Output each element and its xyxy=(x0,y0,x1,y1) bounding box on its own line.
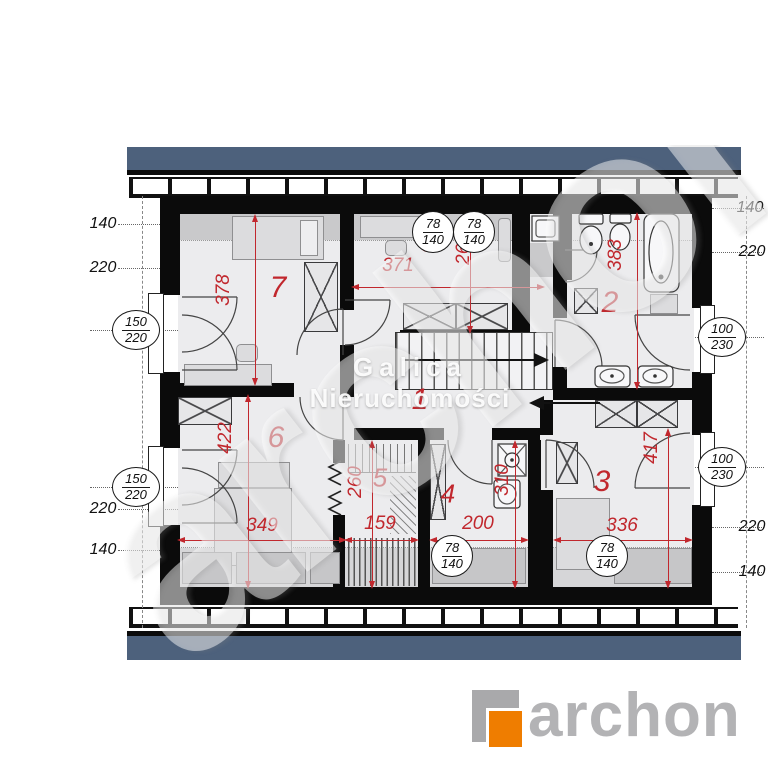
room-number-3: 3 xyxy=(594,465,611,499)
dim-310: 310 xyxy=(492,464,514,496)
marker-width: 78 xyxy=(423,217,443,233)
door-marker-right-bottom: 100 230 xyxy=(698,447,746,487)
room-number-1: 1 xyxy=(412,383,429,417)
dim-159: 159 xyxy=(364,513,396,535)
marker-width: 78 xyxy=(464,217,484,233)
skylight-marker: 78 140 xyxy=(586,535,628,577)
dimension-line xyxy=(349,540,414,541)
marker-width: 150 xyxy=(122,472,150,488)
marker-height: 230 xyxy=(708,468,736,483)
dim-422: 422 xyxy=(215,422,237,454)
dim-336: 336 xyxy=(606,515,638,537)
dim-383: 383 xyxy=(605,239,627,271)
marker-width: 78 xyxy=(442,541,462,557)
window-marker-left-bottom: 150 220 xyxy=(112,467,160,507)
dimension-line xyxy=(182,540,342,541)
room-number-6: 6 xyxy=(268,421,285,455)
room-number-2: 2 xyxy=(602,286,619,320)
window-marker-left-top: 150 220 xyxy=(112,310,160,350)
dim-371: 371 xyxy=(382,255,414,277)
dimension-line xyxy=(356,287,540,288)
room-number-4: 4 xyxy=(441,479,455,510)
dimension-line xyxy=(248,400,249,583)
dim-378: 378 xyxy=(213,274,235,306)
room-number-5: 5 xyxy=(373,463,387,494)
marker-height: 230 xyxy=(708,338,736,353)
marker-height: 140 xyxy=(593,557,621,572)
dimension-line xyxy=(637,218,638,384)
dim-417: 417 xyxy=(641,432,663,464)
plan-linework xyxy=(0,0,768,768)
room-number-7: 7 xyxy=(270,271,287,305)
skylight-marker: 78 140 xyxy=(412,211,454,253)
marker-height: 140 xyxy=(438,557,466,572)
dimension-line xyxy=(558,540,688,541)
marker-width: 78 xyxy=(597,541,617,557)
door-marker-right-top: 100 230 xyxy=(698,317,746,357)
skylight-marker: 78 140 xyxy=(453,211,495,253)
dimension-line xyxy=(515,446,516,583)
dim-349: 349 xyxy=(246,515,278,537)
marker-width: 100 xyxy=(708,452,736,468)
marker-height: 140 xyxy=(419,233,447,248)
dim-200: 200 xyxy=(462,513,494,535)
marker-height: 220 xyxy=(122,488,150,503)
marker-height: 140 xyxy=(460,233,488,248)
dimension-line xyxy=(668,434,669,583)
dim-260: 260 xyxy=(345,466,367,498)
marker-width: 150 xyxy=(122,315,150,331)
dimension-line xyxy=(255,220,256,380)
skylight-marker: 78 140 xyxy=(431,535,473,577)
floorplan-page: 1 2 3 4 5 6 7 8 378 371 266 383 422 349 … xyxy=(0,0,768,768)
marker-height: 220 xyxy=(122,331,150,346)
marker-width: 100 xyxy=(708,322,736,338)
